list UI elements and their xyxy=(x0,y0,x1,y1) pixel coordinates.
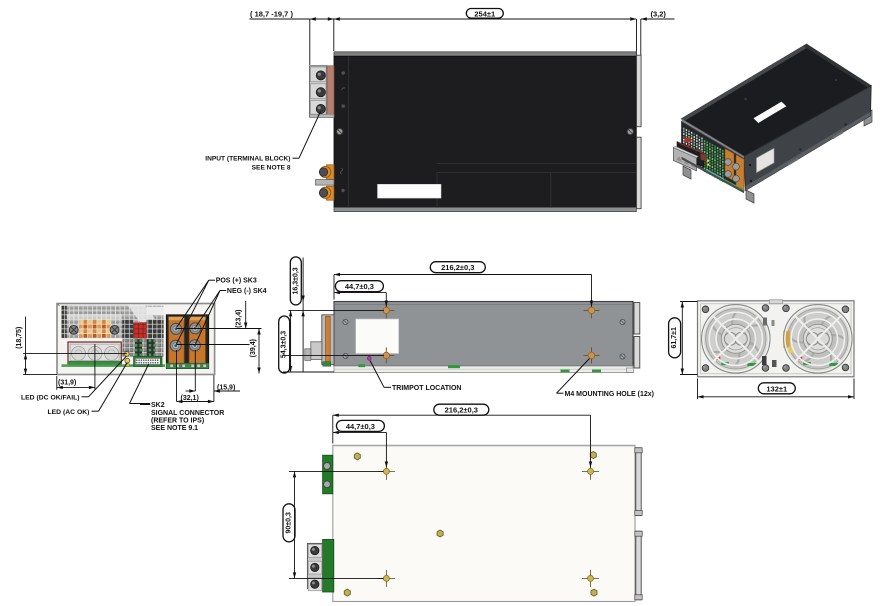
svg-text:54,3±0,3: 54,3±0,3 xyxy=(281,331,288,358)
svg-text:216,2±0,3: 216,2±0,3 xyxy=(445,406,478,415)
svg-text:44,7±0,3: 44,7±0,3 xyxy=(345,282,374,291)
svg-text:(18,75): (18,75) xyxy=(16,327,23,349)
svg-text:M4 MOUNTING HOLE (12x): M4 MOUNTING HOLE (12x) xyxy=(565,391,654,398)
svg-text:NEG (-) SK4: NEG (-) SK4 xyxy=(227,288,267,295)
svg-text:SEE NOTE 8: SEE NOTE 8 xyxy=(252,165,291,172)
svg-text:216,2±0,3: 216,2±0,3 xyxy=(441,263,474,272)
svg-text:132±1: 132±1 xyxy=(766,384,787,393)
svg-text:(REFER TO IPS): (REFER TO IPS) xyxy=(151,417,204,424)
svg-text:16,3±0,3: 16,3±0,3 xyxy=(292,267,299,294)
svg-text:POS (+) SK3: POS (+) SK3 xyxy=(216,278,257,285)
svg-text:(39,4): (39,4) xyxy=(250,339,257,357)
svg-text:( 18,7 -19,7 ): ( 18,7 -19,7 ) xyxy=(250,10,293,19)
svg-text:(3,2): (3,2) xyxy=(651,10,667,19)
svg-text:SK2: SK2 xyxy=(151,402,165,409)
svg-text:90±0,3: 90±0,3 xyxy=(286,512,293,533)
svg-text:61,7±1: 61,7±1 xyxy=(671,327,678,348)
svg-text:(23,4): (23,4) xyxy=(236,310,243,328)
svg-text:SEE NOTE 9.1: SEE NOTE 9.1 xyxy=(151,425,198,432)
svg-text:254±1: 254±1 xyxy=(474,9,495,18)
svg-text:SIGNAL CONNECTOR: SIGNAL CONNECTOR xyxy=(151,410,224,417)
svg-text:INPUT (TERMINAL BLOCK): INPUT (TERMINAL BLOCK) xyxy=(205,156,290,163)
svg-text:(31,9): (31,9) xyxy=(58,380,76,387)
svg-text:44,7±0,3: 44,7±0,3 xyxy=(346,422,375,431)
svg-text:LED (DC OK/FAIL): LED (DC OK/FAIL) xyxy=(21,395,80,402)
svg-text:LED (AC OK): LED (AC OK) xyxy=(48,409,90,416)
svg-text:TRIMPOT LOCATION: TRIMPOT LOCATION xyxy=(392,385,461,392)
